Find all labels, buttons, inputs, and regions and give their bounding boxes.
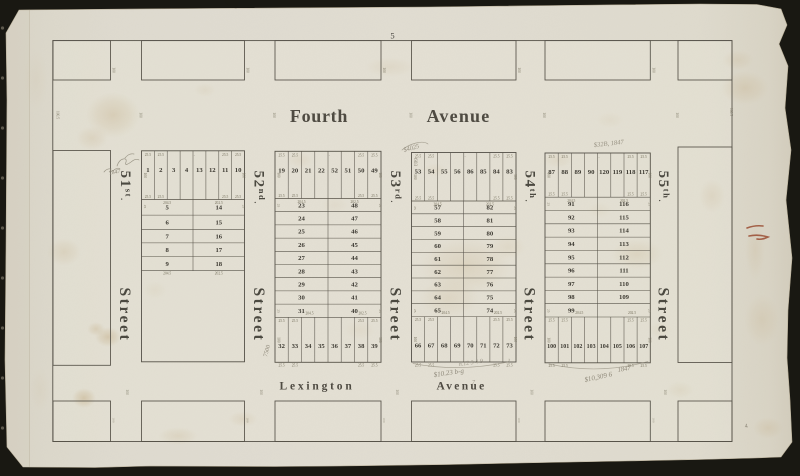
svg-text:25.5: 25.5 <box>358 194 364 198</box>
svg-text:202.5: 202.5 <box>494 311 502 315</box>
svg-text:202.5: 202.5 <box>215 272 223 276</box>
svg-text:204.5: 204.5 <box>442 311 450 315</box>
svg-text:58: 58 <box>434 218 441 225</box>
svg-text:25.5: 25.5 <box>358 364 364 368</box>
svg-text:100: 100 <box>382 417 386 422</box>
svg-text:25.5: 25.5 <box>548 319 554 323</box>
svg-text:25.5: 25.5 <box>278 154 284 158</box>
svg-text:45: 45 <box>351 242 358 249</box>
svg-text:204.5: 204.5 <box>434 203 442 207</box>
svg-text:111: 111 <box>619 268 628 275</box>
svg-text:204.5: 204.5 <box>297 200 305 204</box>
svg-text:25.5: 25.5 <box>493 196 499 200</box>
svg-text:25.5: 25.5 <box>235 195 241 199</box>
svg-text:25: 25 <box>647 309 651 313</box>
svg-text:100: 100 <box>246 67 250 73</box>
svg-text:113: 113 <box>619 241 629 248</box>
svg-text:202.5: 202.5 <box>350 200 358 204</box>
svg-text:80: 80 <box>487 230 494 237</box>
svg-text:Street: Street <box>654 288 671 343</box>
svg-text:104: 104 <box>600 344 609 350</box>
svg-text:70: 70 <box>467 343 474 350</box>
svg-text:20: 20 <box>292 167 299 174</box>
svg-text:100: 100 <box>413 337 417 343</box>
svg-text:25.5: 25.5 <box>627 155 633 159</box>
svg-text:100: 100 <box>112 67 116 73</box>
svg-text:27: 27 <box>298 255 305 262</box>
svg-text:204.5: 204.5 <box>567 199 575 203</box>
svg-text:Avenue: Avenue <box>427 106 491 126</box>
svg-text:25.5: 25.5 <box>278 319 284 323</box>
svg-text:100: 100 <box>517 67 521 73</box>
svg-text:114: 114 <box>619 228 629 235</box>
svg-text:47: 47 <box>351 216 358 223</box>
svg-text:100: 100 <box>647 172 651 178</box>
svg-text:110: 110 <box>619 281 629 288</box>
svg-text:25.5: 25.5 <box>358 319 364 323</box>
svg-text:51: 51 <box>345 167 352 174</box>
svg-text:103: 103 <box>587 344 596 350</box>
svg-text:86: 86 <box>467 169 474 176</box>
svg-text:95: 95 <box>568 254 575 261</box>
svg-text:79: 79 <box>487 243 494 250</box>
svg-text:31: 31 <box>298 308 305 315</box>
svg-text:15: 15 <box>215 219 222 226</box>
svg-text:40: 40 <box>351 308 358 315</box>
svg-text:41: 41 <box>351 295 358 302</box>
svg-text:64: 64 <box>434 295 441 302</box>
svg-text:100: 100 <box>546 337 550 343</box>
svg-text:78: 78 <box>487 256 494 263</box>
svg-text:25.5: 25.5 <box>145 195 151 199</box>
svg-text:28: 28 <box>298 268 305 275</box>
svg-text:74: 74 <box>487 307 494 314</box>
svg-text:76: 76 <box>487 282 494 289</box>
svg-text:75: 75 <box>487 295 494 302</box>
svg-text:97: 97 <box>568 281 575 288</box>
svg-text:25: 25 <box>378 204 382 208</box>
svg-text:25.5: 25.5 <box>548 193 554 197</box>
svg-text:71: 71 <box>480 343 487 350</box>
svg-text:115: 115 <box>619 214 629 221</box>
svg-text:100: 100 <box>513 174 517 180</box>
svg-text:5: 5 <box>390 31 394 41</box>
svg-text:56: 56 <box>454 169 461 176</box>
svg-text:25.5: 25.5 <box>627 319 633 323</box>
svg-text:204.5: 204.5 <box>163 272 171 276</box>
svg-text:25.5: 25.5 <box>292 319 298 323</box>
svg-text:25.5: 25.5 <box>627 193 633 197</box>
svg-text:72: 72 <box>493 343 500 350</box>
svg-text:25: 25 <box>378 309 382 313</box>
svg-text:25: 25 <box>276 204 280 208</box>
svg-text:204.5: 204.5 <box>163 201 171 205</box>
svg-text:25.5: 25.5 <box>506 155 512 159</box>
svg-text:25: 25 <box>546 203 550 207</box>
svg-text:94: 94 <box>568 241 575 248</box>
svg-text:33: 33 <box>292 343 299 350</box>
svg-text:100: 100 <box>143 173 147 179</box>
svg-text:202.5: 202.5 <box>486 203 494 207</box>
svg-text:81: 81 <box>487 218 494 225</box>
svg-text:25.5: 25.5 <box>145 153 151 157</box>
svg-text:60: 60 <box>434 243 441 250</box>
svg-text:88: 88 <box>561 169 568 176</box>
svg-text:63: 63 <box>434 282 441 289</box>
svg-text:202.5: 202.5 <box>620 199 628 203</box>
svg-text:Avenue: Avenue <box>436 381 486 393</box>
svg-text:100: 100 <box>530 389 534 395</box>
svg-text:99: 99 <box>568 308 575 315</box>
svg-text:202.5: 202.5 <box>358 311 366 315</box>
svg-text:Street: Street <box>116 288 133 343</box>
svg-text:37: 37 <box>345 343 352 350</box>
svg-text:25.5: 25.5 <box>428 196 434 200</box>
svg-text:38: 38 <box>358 343 365 350</box>
svg-text:105: 105 <box>613 344 622 350</box>
svg-text:25.5: 25.5 <box>415 196 421 200</box>
svg-text:101: 101 <box>560 344 569 350</box>
svg-text:120: 120 <box>599 169 610 176</box>
svg-text:100: 100 <box>542 112 546 118</box>
svg-text:68: 68 <box>441 343 448 350</box>
svg-text:202.5: 202.5 <box>215 201 223 205</box>
svg-text:100: 100 <box>517 417 521 422</box>
svg-text:25.5: 25.5 <box>235 153 241 157</box>
svg-text:26: 26 <box>298 242 305 249</box>
svg-text:25.5: 25.5 <box>641 193 647 197</box>
svg-text:61: 61 <box>434 256 441 263</box>
svg-text:100: 100 <box>513 337 517 343</box>
svg-text:25.5: 25.5 <box>292 154 298 158</box>
svg-text:100: 100 <box>409 112 413 118</box>
svg-text:12: 12 <box>209 167 216 174</box>
svg-text:25.5: 25.5 <box>158 153 164 157</box>
svg-text:100: 100 <box>125 389 129 395</box>
svg-text:84: 84 <box>493 169 500 176</box>
svg-text:77: 77 <box>487 269 494 276</box>
svg-text:Street: Street <box>386 288 403 343</box>
svg-text:100: 100 <box>663 389 667 395</box>
svg-text:25: 25 <box>143 205 147 209</box>
svg-text:204.5: 204.5 <box>305 311 313 315</box>
svg-text:100: 100 <box>547 344 556 350</box>
svg-text:25.5: 25.5 <box>371 194 377 198</box>
svg-text:25.5: 25.5 <box>506 196 512 200</box>
svg-text:36: 36 <box>331 343 338 350</box>
svg-text:Street: Street <box>250 288 267 343</box>
svg-text:25: 25 <box>242 205 246 209</box>
svg-text:202.5: 202.5 <box>628 311 636 315</box>
svg-text:51st.: 51st. <box>117 171 134 202</box>
svg-text:25.5: 25.5 <box>278 364 284 368</box>
svg-text:Fourth: Fourth <box>290 106 348 126</box>
svg-text:204.5: 204.5 <box>575 311 583 315</box>
svg-text:67: 67 <box>428 343 435 350</box>
svg-text:25: 25 <box>647 203 651 207</box>
svg-text:25.5: 25.5 <box>562 155 568 159</box>
svg-text:25.5: 25.5 <box>222 195 228 199</box>
svg-text:32: 32 <box>278 343 285 350</box>
svg-text:98: 98 <box>568 294 575 301</box>
svg-text:42: 42 <box>351 282 358 289</box>
svg-text:100: 100 <box>382 67 386 73</box>
svg-text:90: 90 <box>588 169 595 176</box>
svg-text:50: 50 <box>358 167 365 174</box>
svg-text:39: 39 <box>371 343 378 350</box>
svg-text:25.5: 25.5 <box>371 319 377 323</box>
svg-text:25.5: 25.5 <box>371 154 377 158</box>
svg-text:34: 34 <box>305 343 312 350</box>
svg-text:21: 21 <box>305 167 312 174</box>
svg-text:25.5: 25.5 <box>292 364 298 368</box>
svg-text:73: 73 <box>506 343 513 350</box>
svg-text:Lexington: Lexington <box>279 381 354 393</box>
svg-text:25.5: 25.5 <box>428 318 434 322</box>
svg-text:49: 49 <box>371 167 378 174</box>
svg-text:100: 100 <box>276 172 280 178</box>
svg-text:106: 106 <box>626 344 635 350</box>
svg-text:118: 118 <box>626 169 636 176</box>
svg-text:66: 66 <box>415 343 422 350</box>
svg-text:35: 35 <box>318 343 325 350</box>
svg-text:43: 43 <box>351 268 358 275</box>
svg-text:25.5: 25.5 <box>415 318 421 322</box>
svg-text:25.5: 25.5 <box>292 194 298 198</box>
svg-text:55: 55 <box>441 169 448 176</box>
svg-text:29: 29 <box>298 282 305 289</box>
svg-text:46: 46 <box>351 229 358 236</box>
svg-text:100: 100 <box>395 389 399 395</box>
svg-text:25: 25 <box>513 206 517 210</box>
svg-text:119: 119 <box>613 169 623 176</box>
svg-text:24: 24 <box>298 216 305 223</box>
svg-text:100: 100 <box>139 112 143 118</box>
svg-text:100: 100 <box>546 172 550 178</box>
svg-text:100: 100 <box>259 389 263 395</box>
svg-text:25.5: 25.5 <box>371 364 377 368</box>
svg-text:25: 25 <box>513 309 517 313</box>
svg-text:59: 59 <box>434 230 441 237</box>
svg-text:52: 52 <box>331 167 338 174</box>
svg-text:96: 96 <box>568 268 575 275</box>
svg-text:100: 100 <box>413 174 417 180</box>
svg-text:25.5: 25.5 <box>506 363 512 367</box>
svg-text:25: 25 <box>413 206 417 210</box>
svg-text:18: 18 <box>215 261 222 268</box>
svg-text:16: 16 <box>215 233 222 240</box>
svg-text:100: 100 <box>647 337 651 343</box>
svg-text:25.5: 25.5 <box>641 364 647 368</box>
svg-text:Street: Street <box>521 288 538 343</box>
svg-text:25.5: 25.5 <box>641 319 647 323</box>
svg-text:100: 100 <box>246 417 250 422</box>
svg-text:25.5: 25.5 <box>493 155 499 159</box>
svg-text:25.5: 25.5 <box>506 318 512 322</box>
svg-text:112: 112 <box>619 254 629 261</box>
svg-text:100: 100 <box>651 417 655 422</box>
svg-text:83: 83 <box>506 169 513 176</box>
svg-text:100: 100 <box>378 337 382 343</box>
svg-text:25.5: 25.5 <box>493 318 499 322</box>
svg-text:25.5: 25.5 <box>158 195 164 199</box>
svg-text:25.5: 25.5 <box>428 155 434 159</box>
svg-text:17: 17 <box>215 247 222 254</box>
svg-text:109: 109 <box>619 294 630 301</box>
svg-text:92: 92 <box>568 214 575 221</box>
svg-text:13: 13 <box>196 167 203 174</box>
svg-text:10: 10 <box>235 167 242 174</box>
svg-text:603: 603 <box>412 158 418 167</box>
svg-text:22: 22 <box>318 167 325 174</box>
svg-text:44: 44 <box>351 255 358 262</box>
svg-text:100: 100 <box>242 173 246 179</box>
svg-text:93: 93 <box>568 228 575 235</box>
svg-text:69: 69 <box>454 343 461 350</box>
svg-text:85: 85 <box>480 169 487 176</box>
svg-text:100.5: 100.5 <box>55 111 59 119</box>
svg-text:25: 25 <box>276 309 280 313</box>
svg-text:100: 100 <box>675 112 679 118</box>
svg-text:62: 62 <box>434 269 441 276</box>
svg-text:25.5: 25.5 <box>641 155 647 159</box>
svg-text:25.5: 25.5 <box>358 154 364 158</box>
svg-text:107: 107 <box>639 344 648 350</box>
svg-text:54: 54 <box>428 169 435 176</box>
svg-text:25.5: 25.5 <box>562 193 568 197</box>
svg-text:100: 100 <box>651 67 655 73</box>
svg-text:11: 11 <box>222 167 228 174</box>
svg-text:14: 14 <box>215 205 222 212</box>
svg-text:100: 100 <box>272 112 276 118</box>
svg-text:25.5: 25.5 <box>222 153 228 157</box>
svg-text:100: 100 <box>112 417 116 422</box>
svg-text:25.5: 25.5 <box>548 155 554 159</box>
svg-text:30: 30 <box>298 295 305 302</box>
svg-text:65: 65 <box>434 307 441 314</box>
svg-text:25.5: 25.5 <box>562 319 568 323</box>
svg-text:102: 102 <box>573 344 582 350</box>
svg-text:89: 89 <box>575 169 582 176</box>
svg-text:100: 100 <box>276 337 280 343</box>
svg-text:25.5: 25.5 <box>278 194 284 198</box>
svg-text:100: 100 <box>378 172 382 178</box>
svg-text:100.5: 100.5 <box>729 108 733 116</box>
svg-text:25: 25 <box>546 309 550 313</box>
svg-text:25: 25 <box>298 229 305 236</box>
svg-text:25: 25 <box>413 309 417 313</box>
